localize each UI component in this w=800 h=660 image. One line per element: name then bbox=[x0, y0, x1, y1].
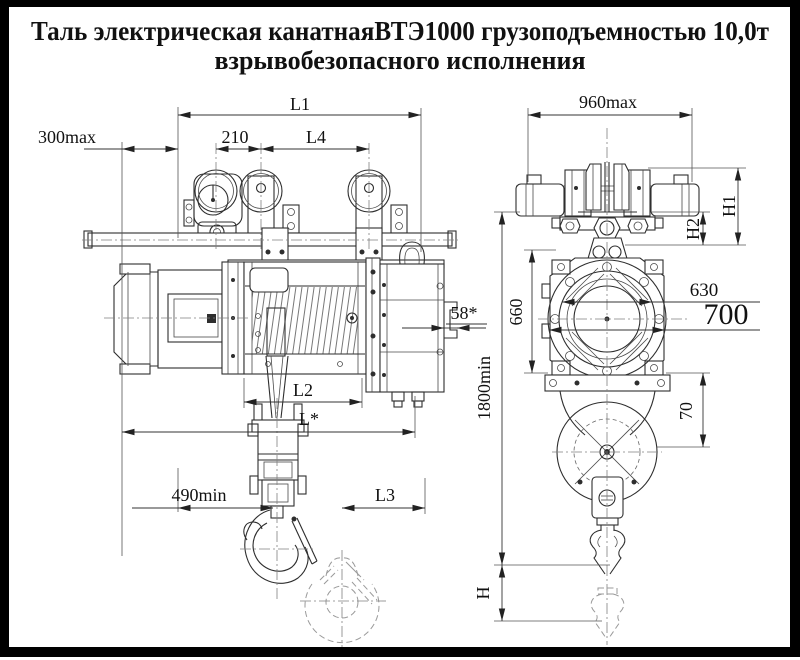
dim-label-660: 660 bbox=[506, 299, 526, 326]
hook-front bbox=[590, 530, 625, 574]
dim-label-l4: L4 bbox=[306, 127, 326, 147]
electrical-box bbox=[366, 242, 457, 407]
dim-label-490min: 490min bbox=[171, 485, 226, 505]
hook-side bbox=[244, 510, 317, 583]
hook-suspension-front bbox=[545, 375, 670, 638]
dim-label-700: 700 bbox=[704, 298, 749, 331]
dim-label-h1: H1 bbox=[719, 195, 739, 217]
rope-drum bbox=[244, 262, 366, 374]
dim-label-58: 58* bbox=[451, 303, 478, 323]
dim-label-l1: L1 bbox=[290, 94, 310, 114]
nameplate bbox=[250, 268, 288, 292]
drawing-title-line-2: взрывобезопасного исполнения bbox=[214, 46, 585, 75]
dim-label-960max: 960max bbox=[579, 92, 637, 112]
dim-label-300max: 300max bbox=[38, 127, 96, 147]
gear-housing-front bbox=[542, 258, 666, 378]
drawing-title-line-1: Таль электрическая канатнаяВТЭ1000 грузо… bbox=[31, 16, 769, 46]
travel-motor-right bbox=[651, 184, 699, 216]
dim-label-h2: H2 bbox=[683, 218, 703, 240]
dim-label-l2: L2 bbox=[293, 380, 313, 400]
dim-label-70: 70 bbox=[676, 402, 696, 420]
dim-label-l-star: L* bbox=[299, 409, 319, 429]
dim-label-1800min: 1800min bbox=[474, 356, 494, 420]
dim-label-210: 210 bbox=[222, 127, 249, 147]
side-view bbox=[84, 170, 457, 643]
ghost-hook-front bbox=[591, 588, 624, 638]
drawing-sheet: Таль электрическая канатнаяВТЭ1000 грузо… bbox=[0, 0, 800, 660]
technical-drawing: Таль электрическая канатнаяВТЭ1000 грузо… bbox=[0, 0, 800, 660]
dim-label-l3: L3 bbox=[375, 485, 395, 505]
dim-label-h: H bbox=[473, 587, 493, 600]
front-view bbox=[516, 162, 699, 638]
travel-motor-left bbox=[516, 184, 564, 216]
